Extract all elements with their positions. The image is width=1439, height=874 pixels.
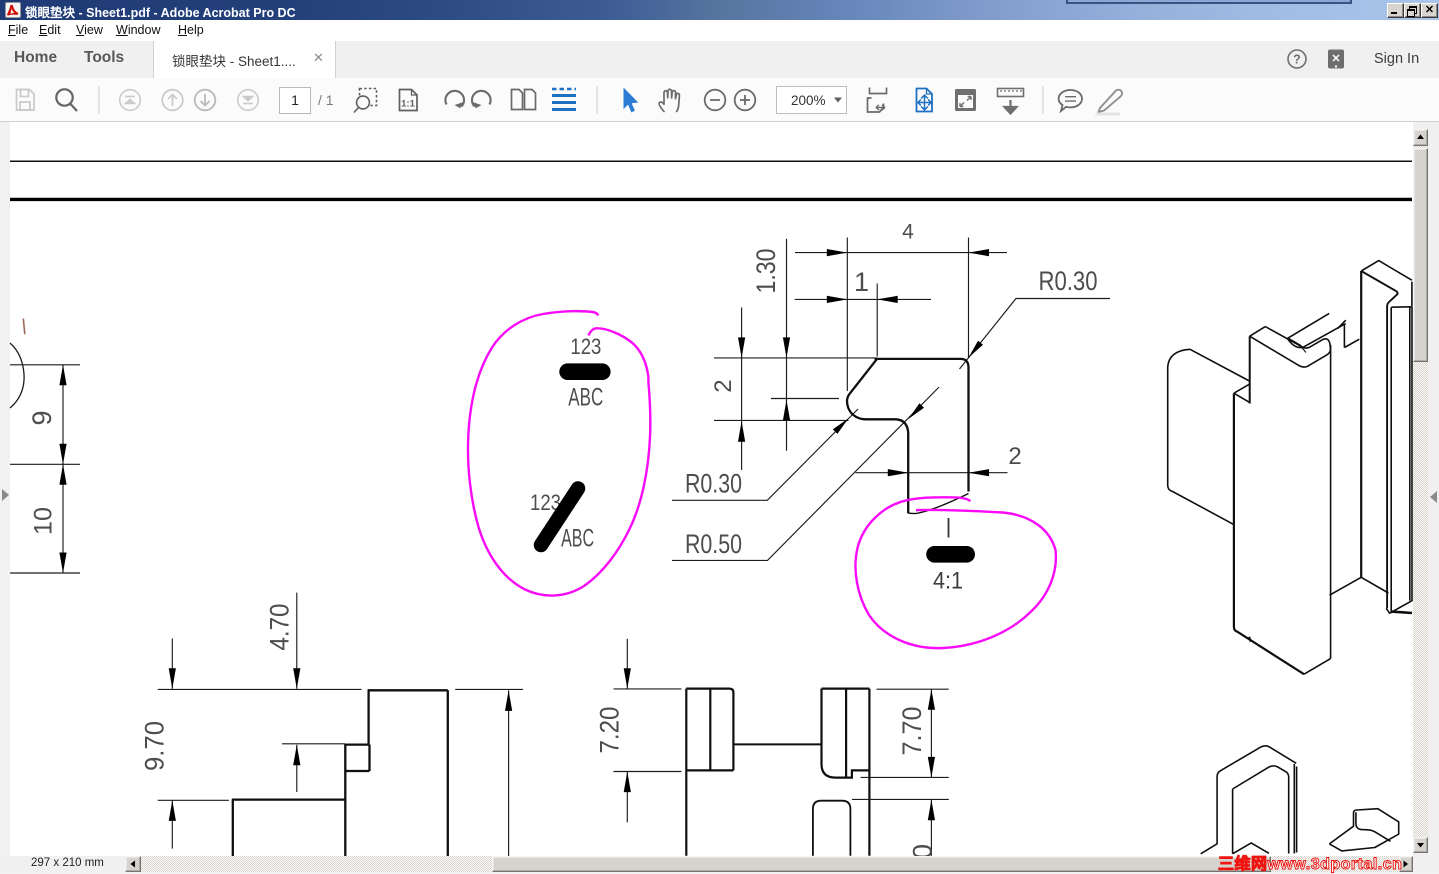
svg-text:4.70: 4.70	[265, 604, 295, 651]
svg-text:1: 1	[854, 267, 869, 297]
svg-text:ABC: ABC	[568, 383, 603, 411]
svg-text:2: 2	[710, 379, 737, 392]
svg-text:10: 10	[30, 507, 58, 535]
svg-text:4: 4	[902, 221, 914, 244]
svg-text:9.70: 9.70	[140, 721, 170, 771]
svg-text:7.20: 7.20	[595, 707, 625, 754]
svg-text:1: 1	[291, 92, 299, 108]
svg-text:R0.30: R0.30	[1039, 266, 1098, 296]
svg-text:ABC: ABC	[561, 525, 594, 553]
svg-text:1:1: 1:1	[401, 99, 415, 110]
svg-text:9: 9	[27, 410, 57, 425]
svg-text:/ 1: / 1	[318, 92, 334, 108]
svg-text:7.70: 7.70	[897, 707, 927, 756]
svg-text:123: 123	[570, 334, 601, 359]
svg-text:2: 2	[1008, 443, 1021, 470]
svg-text:R0.50: R0.50	[685, 529, 742, 559]
svg-text:4:1: 4:1	[933, 568, 963, 595]
svg-text:1.30: 1.30	[751, 249, 781, 294]
svg-text:✕: ✕	[1331, 53, 1340, 65]
svg-text:?: ?	[1293, 53, 1301, 67]
svg-text:R0.30: R0.30	[685, 469, 742, 499]
svg-text:200%: 200%	[791, 93, 826, 108]
